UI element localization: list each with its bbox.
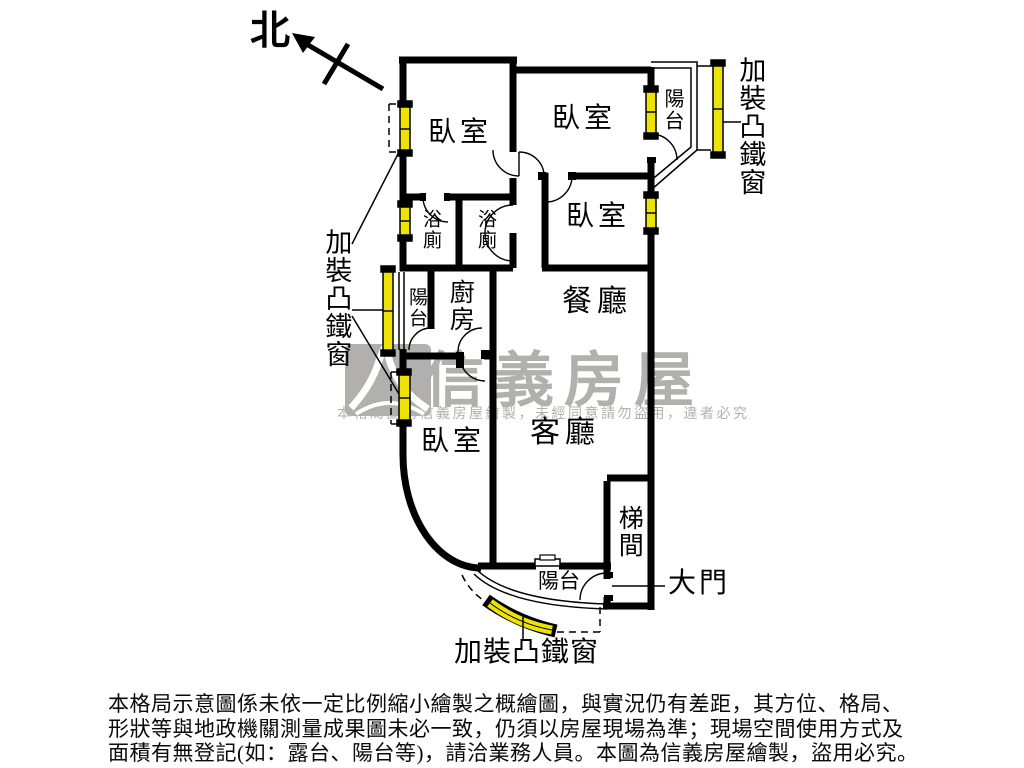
room-label-bedroom-bottom-left: 臥室: [421, 427, 485, 456]
disclaimer-line-3: 面積有無登記(如：露台、陽台等)，請洽業務人員。本圖為信義房屋繪製，盜用必究。: [108, 741, 928, 766]
disclaimer-line-1: 本格局示意圖係未依一定比例縮小繪製之概繪圖，與實況仍有差距，其方位、格局、: [108, 692, 928, 717]
living-balcony-window: [535, 555, 560, 566]
window-bed3-right: [644, 192, 658, 234]
room-label-stairwell: 梯間: [615, 505, 641, 559]
window-iron-left-long: [381, 266, 395, 356]
room-label-balcony-bottom: 陽台: [538, 570, 580, 592]
annotation-main-door: 大門: [668, 569, 730, 598]
room-label-bath-left: 浴廁: [420, 209, 440, 251]
floor-plan-page: 信義房屋 本格局圖為信義房屋繪製，未經同意請勿盜用，違者必究: [0, 0, 1024, 768]
window-bed4-left: [397, 369, 411, 426]
room-label-bedroom-top-left: 臥室: [428, 118, 492, 147]
window-balcony-topright: [644, 86, 658, 139]
north-label: 北: [250, 10, 290, 52]
room-label-bedroom-middle-right: 臥室: [566, 202, 630, 231]
window-bath-left: [398, 201, 412, 241]
annotation-iron-window-right: 加裝凸鐵窗: [736, 56, 764, 196]
window-iron-bottom-curved: [486, 600, 556, 631]
room-label-bath-right: 浴廁: [475, 209, 495, 251]
window-bed1-left: [398, 101, 412, 156]
room-label-balcony-top-right: 陽台: [661, 88, 682, 132]
north-arrow-icon: [292, 33, 383, 89]
room-label-living: 客廳: [530, 417, 600, 449]
window-iron-topright: [711, 60, 725, 158]
room-label-bedroom-top-middle: 臥室: [552, 104, 616, 133]
annotation-iron-window-bottom: 加裝凸鐵窗: [454, 638, 599, 667]
room-label-kitchen: 廚房: [446, 279, 472, 333]
disclaimer-line-2: 形狀等與地政機關測量成果圖未必一致，仍須以房屋現場為準；現場空間使用方式及: [108, 717, 928, 742]
annotation-iron-window-left: 加裝凸鐵窗: [322, 228, 350, 368]
room-label-balcony-left: 陽台: [406, 287, 426, 329]
disclaimer: 本格局示意圖係未依一定比例縮小繪製之概繪圖，與實況仍有差距，其方位、格局、 形狀…: [108, 692, 928, 766]
room-label-dining: 餐廳: [562, 286, 632, 318]
